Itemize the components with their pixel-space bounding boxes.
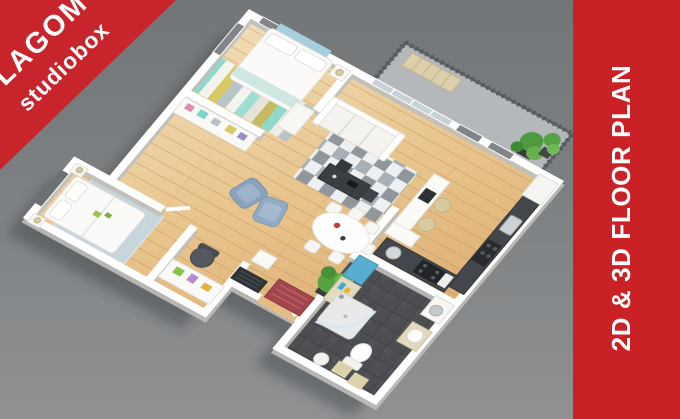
side-banner: 2D & 3D FLOOR PLAN (573, 0, 680, 419)
side-banner-text: 2D & 3D FLOOR PLAN (606, 65, 636, 352)
floorplan-promo-image: LAGOM studiobox 2D & 3D FLOOR PLAN (0, 0, 680, 419)
scene-canvas: LAGOM studiobox 2D & 3D FLOOR PLAN (0, 0, 680, 419)
